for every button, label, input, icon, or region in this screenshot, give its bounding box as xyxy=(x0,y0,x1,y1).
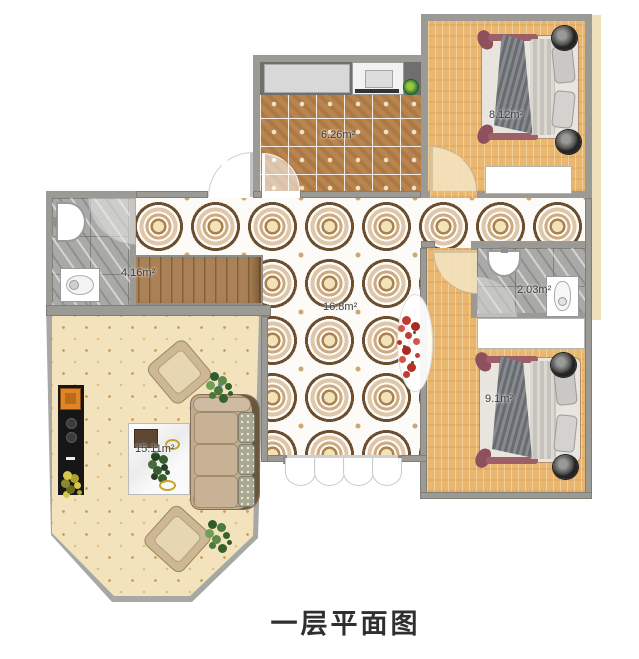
floor-plan: 6.26m² 8.12m² 16.8m² 4.16m² 2.03m² 9.1m²… xyxy=(0,0,639,659)
sink-right-tap xyxy=(501,247,508,253)
sofa-back-pillow xyxy=(238,476,255,507)
right-ledge xyxy=(592,15,601,320)
kitchen-sink xyxy=(404,80,418,94)
wall-outer-right xyxy=(585,198,592,499)
sofa-back-pillow xyxy=(238,412,255,443)
area-label-kitchen: 6.26m² xyxy=(321,129,355,141)
coffee-table xyxy=(128,423,190,495)
area-label-bathroom-right: 2.03m² xyxy=(517,284,551,296)
tv-screen-inner xyxy=(65,393,76,404)
wall-living-hall-divider xyxy=(261,316,268,462)
toilet-drain xyxy=(558,297,567,306)
patio-folding-door-leaf xyxy=(314,458,345,486)
sofa-cushion xyxy=(194,444,238,476)
toilet-right-bathroom xyxy=(546,276,579,317)
tv-cabinet xyxy=(58,385,84,495)
bed-duvet xyxy=(492,356,532,464)
sofa-cushion xyxy=(194,476,238,508)
speaker xyxy=(66,418,77,429)
bed-duvet xyxy=(494,34,532,140)
toilet-bowl xyxy=(554,281,571,311)
wall-hall-top-3 xyxy=(300,191,421,198)
bed-pillow xyxy=(551,90,576,129)
squat-toilet xyxy=(60,268,100,302)
armchair-cushion xyxy=(156,348,203,395)
hall-flower-plant xyxy=(402,316,411,325)
area-label-bedroom-bottom: 9.1m² xyxy=(485,393,513,405)
kitchen-cabinet xyxy=(264,64,350,93)
stove-base xyxy=(355,89,399,93)
sink-left-tap xyxy=(51,217,57,226)
yellow-flower-plant xyxy=(63,471,72,480)
wall-corridor-stub xyxy=(421,241,435,248)
staircase xyxy=(125,255,263,305)
plant-by-sofa-top xyxy=(210,372,219,381)
wall-living-top xyxy=(46,305,271,316)
bedroom-top-door-opening xyxy=(430,191,477,198)
area-label-bathroom-left: 4.16m² xyxy=(121,267,155,279)
plant-by-armchair-bottom xyxy=(208,520,217,529)
nightstand xyxy=(556,130,581,154)
nightstand xyxy=(552,26,577,50)
squat-toilet-drain xyxy=(69,280,79,290)
bed-pillow xyxy=(551,45,576,84)
patio-folding-door-leaf xyxy=(372,458,402,486)
bed-top-bedroom xyxy=(482,36,578,138)
patio-folding-door-leaf xyxy=(285,458,316,486)
cabinet-logo xyxy=(66,457,75,460)
wall-bedroom-bottom-bottom xyxy=(420,492,592,499)
tv-screen xyxy=(60,388,81,410)
nightstand xyxy=(553,455,578,479)
sofa xyxy=(190,394,260,510)
area-label-living-room: 15.11m² xyxy=(135,443,175,455)
entrance-door-swing xyxy=(208,152,253,197)
bay-window-right-middle xyxy=(477,318,585,349)
sofa-armrest xyxy=(193,397,251,412)
area-label-bedroom-top: 8.12m² xyxy=(489,109,523,121)
oven-door xyxy=(365,70,393,88)
bay-window-bedroom-top xyxy=(485,166,572,194)
bed-pillow xyxy=(553,414,578,453)
speaker xyxy=(66,432,77,443)
armchair-cushion xyxy=(152,514,202,564)
bed-sheets xyxy=(530,361,556,459)
kitchen-stove xyxy=(352,62,404,95)
plan-title: 一层平面图 xyxy=(0,602,639,641)
patio-folding-door-leaf xyxy=(343,458,374,486)
area-label-hall: 16.8m² xyxy=(323,301,357,313)
sofa-cushion xyxy=(194,412,238,444)
wall-hall-top-1 xyxy=(136,191,208,198)
wall-hall-bottom-right xyxy=(400,455,427,462)
hall-rug xyxy=(397,294,433,392)
decor-ring xyxy=(159,480,176,491)
wall-hall-top-2 xyxy=(253,191,262,198)
sofa-back-pillow xyxy=(238,444,255,475)
nightstand xyxy=(551,353,576,377)
